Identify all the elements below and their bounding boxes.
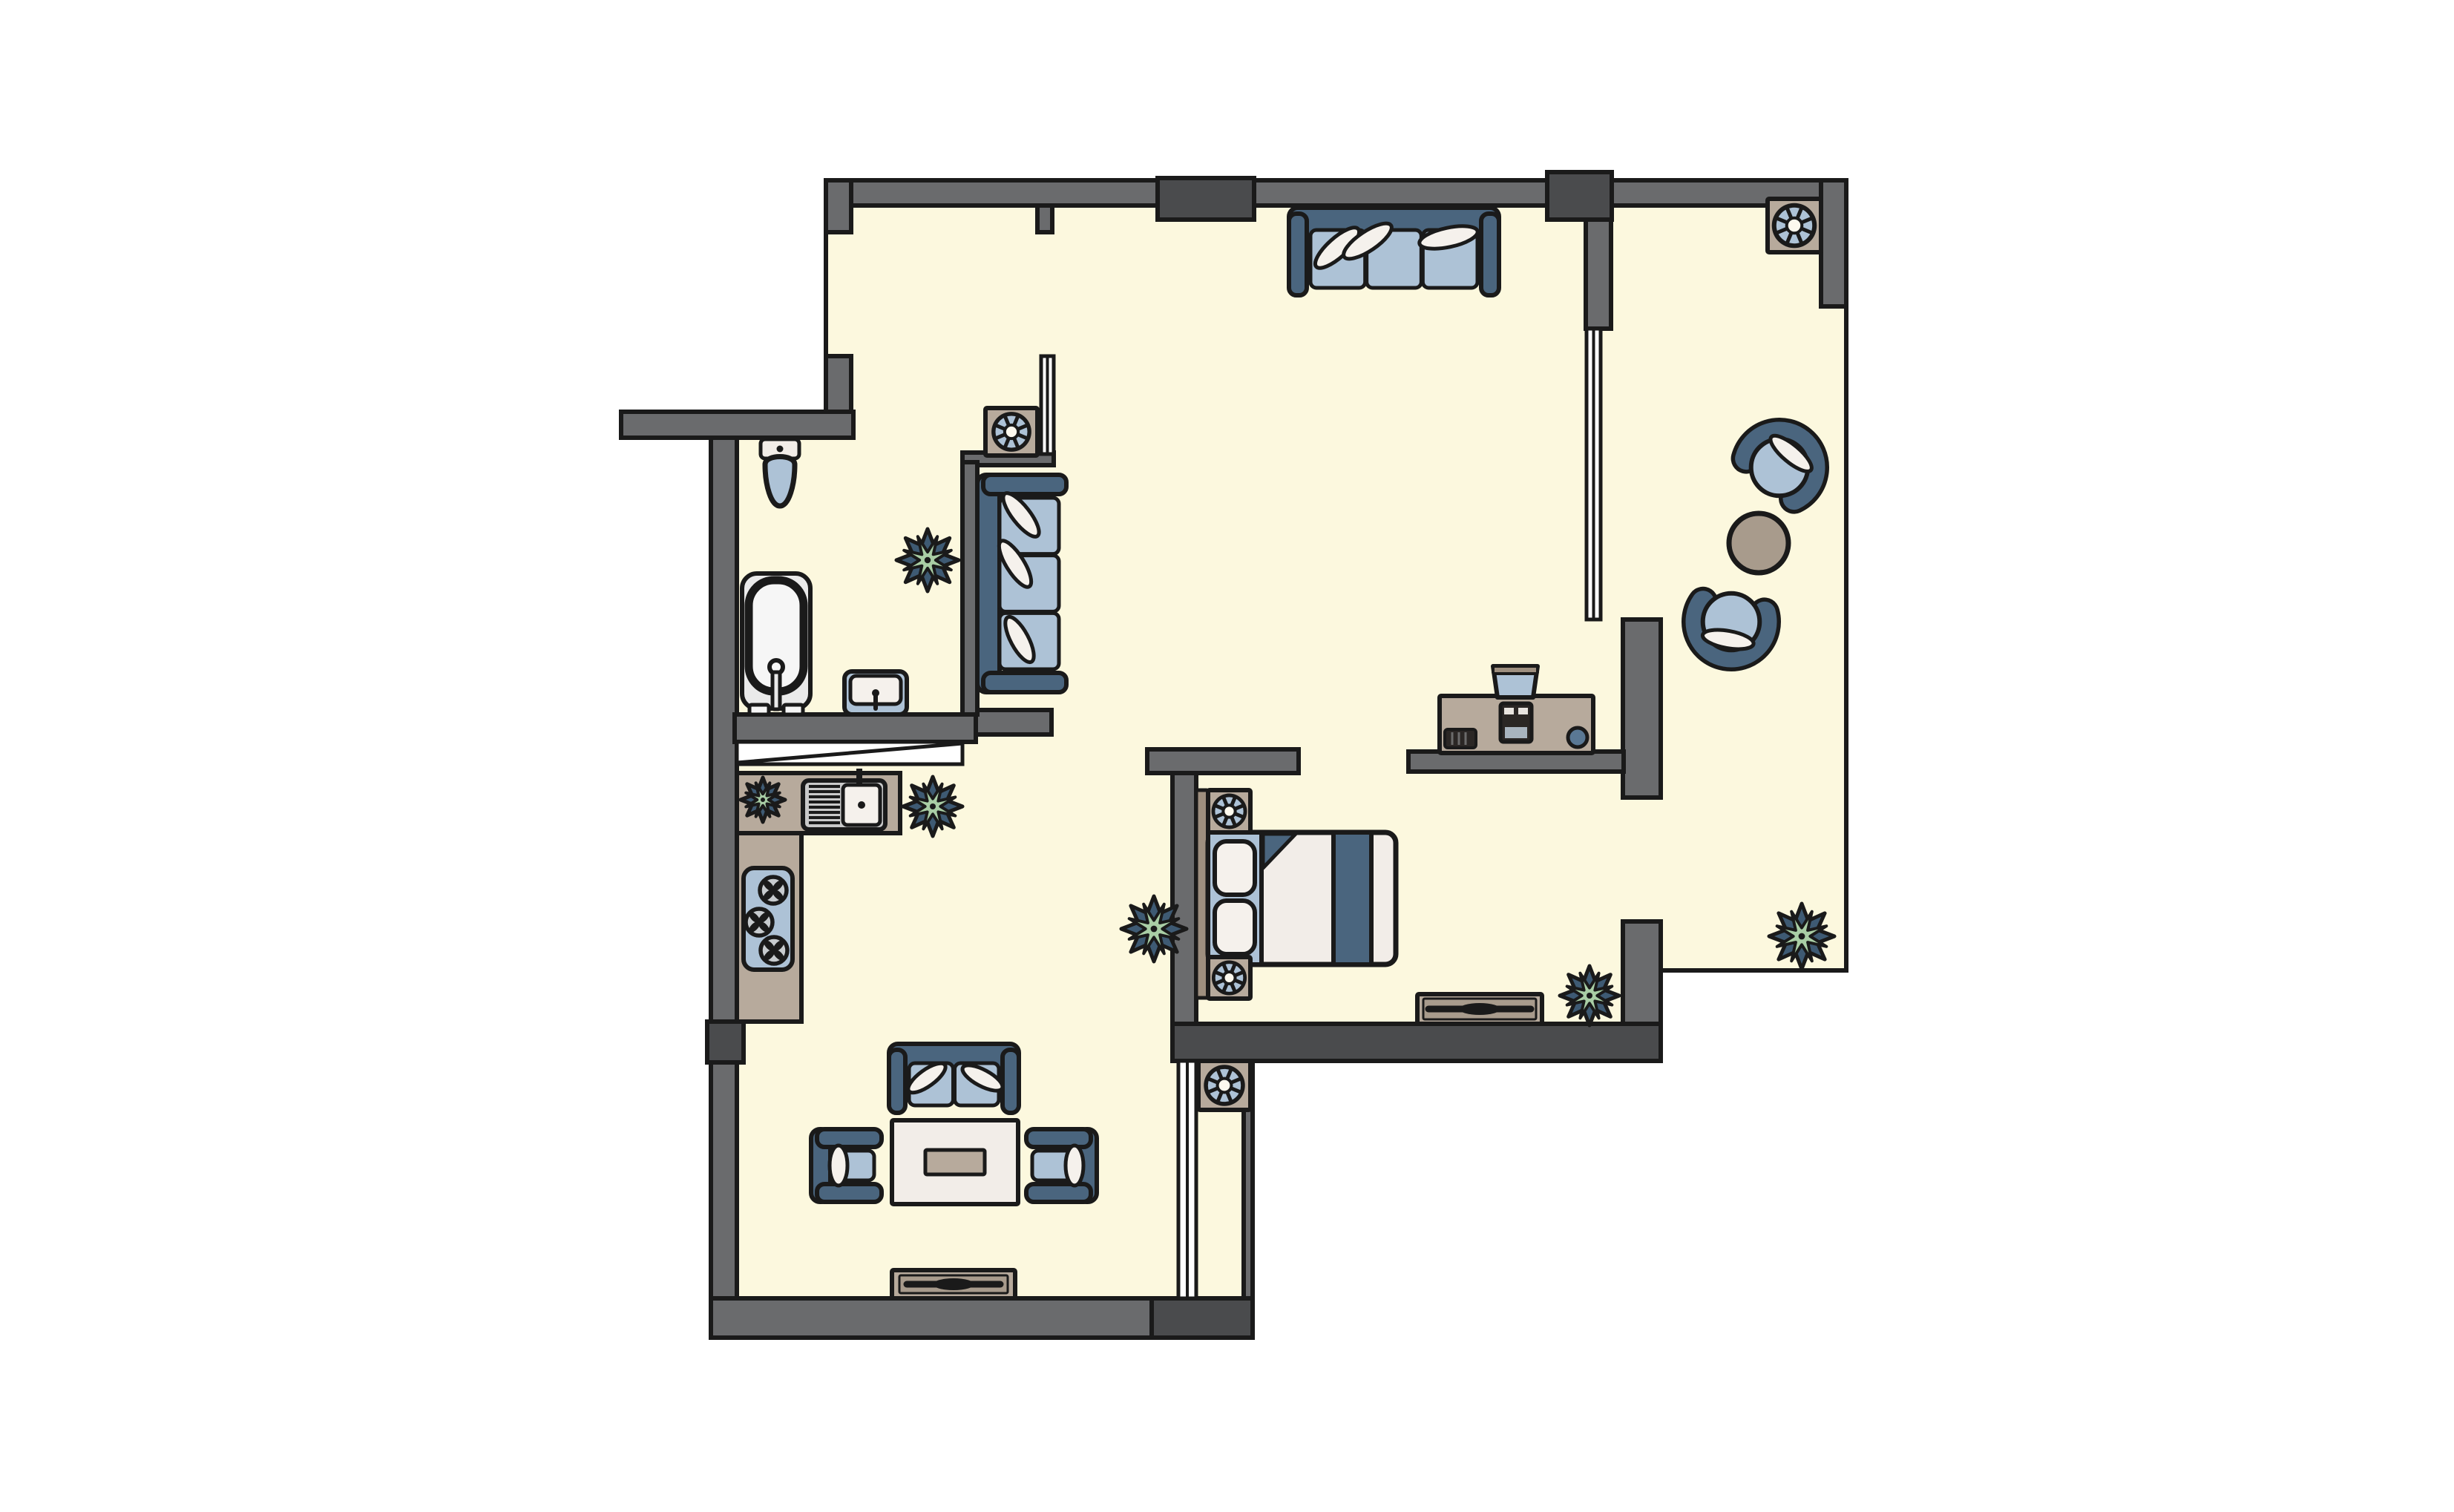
- wall-bottom-dark: [1152, 1298, 1253, 1338]
- coffee-table: [892, 1120, 1018, 1204]
- wall-bath-top: [621, 412, 853, 438]
- door-bathroom: [737, 742, 962, 764]
- wall-top: [826, 180, 1846, 206]
- vent-hall: [985, 408, 1037, 456]
- stove-cooktop: [744, 868, 793, 970]
- wall-left-main: [711, 438, 737, 1298]
- bedroom-dresser: [1417, 994, 1542, 1024]
- sofa-hall: [977, 475, 1066, 692]
- vent-nook: [1198, 1061, 1250, 1110]
- bathroom-sink: [844, 671, 907, 714]
- door-nook: [1178, 1061, 1196, 1298]
- desk-accessory: [1445, 729, 1476, 748]
- plant-wing: [1769, 904, 1834, 969]
- pier-left-dark: [707, 1022, 744, 1062]
- armchair-left: [811, 1129, 882, 1202]
- wall-bath-bottom: [735, 714, 976, 742]
- bathtub: [742, 573, 810, 714]
- sofa-living-top: [1289, 208, 1499, 295]
- floor-plan-page: [0, 0, 2454, 1512]
- plant-kitchen-small: [741, 778, 785, 822]
- double-bed: [1208, 832, 1396, 964]
- loveseat-lounge: [889, 1044, 1019, 1113]
- speaker-bed-top: [1208, 790, 1250, 832]
- wall-bedroom-top: [1147, 749, 1299, 773]
- vent-top-right: [1768, 199, 1821, 252]
- pier-low-wing: [1623, 921, 1661, 1024]
- plant-hall: [896, 529, 959, 591]
- computer-monitor: [1493, 666, 1538, 697]
- computer-mouse: [1568, 728, 1587, 747]
- stub-top-door: [1037, 206, 1052, 232]
- round-side-table: [1729, 513, 1788, 573]
- tv-stand: [892, 1270, 1015, 1298]
- plant-bedroom: [1560, 966, 1619, 1025]
- pier-entry-door: [1158, 178, 1254, 220]
- wall-bedroom-left: [1172, 749, 1196, 1024]
- door-hall: [1041, 356, 1054, 454]
- pier-top-divider: [1547, 172, 1612, 220]
- pier-left-top: [826, 180, 851, 232]
- armchair-right: [1026, 1129, 1097, 1202]
- computer-tower: [1500, 703, 1532, 742]
- plant-kitchen: [903, 777, 962, 836]
- window-divider: [1587, 329, 1601, 619]
- speaker-bed-bottom: [1208, 957, 1250, 999]
- round-chair-lower: [1697, 594, 1766, 657]
- plant-lounge: [1121, 896, 1187, 962]
- pier-right-top: [1821, 180, 1846, 306]
- floor-plan-svg: [0, 0, 2454, 1512]
- wall-bottom: [711, 1298, 1152, 1338]
- wall-bedroom-bottom: [1172, 1024, 1661, 1061]
- wall-divider-upper: [1586, 220, 1611, 329]
- pier-mid-desk: [1623, 619, 1661, 798]
